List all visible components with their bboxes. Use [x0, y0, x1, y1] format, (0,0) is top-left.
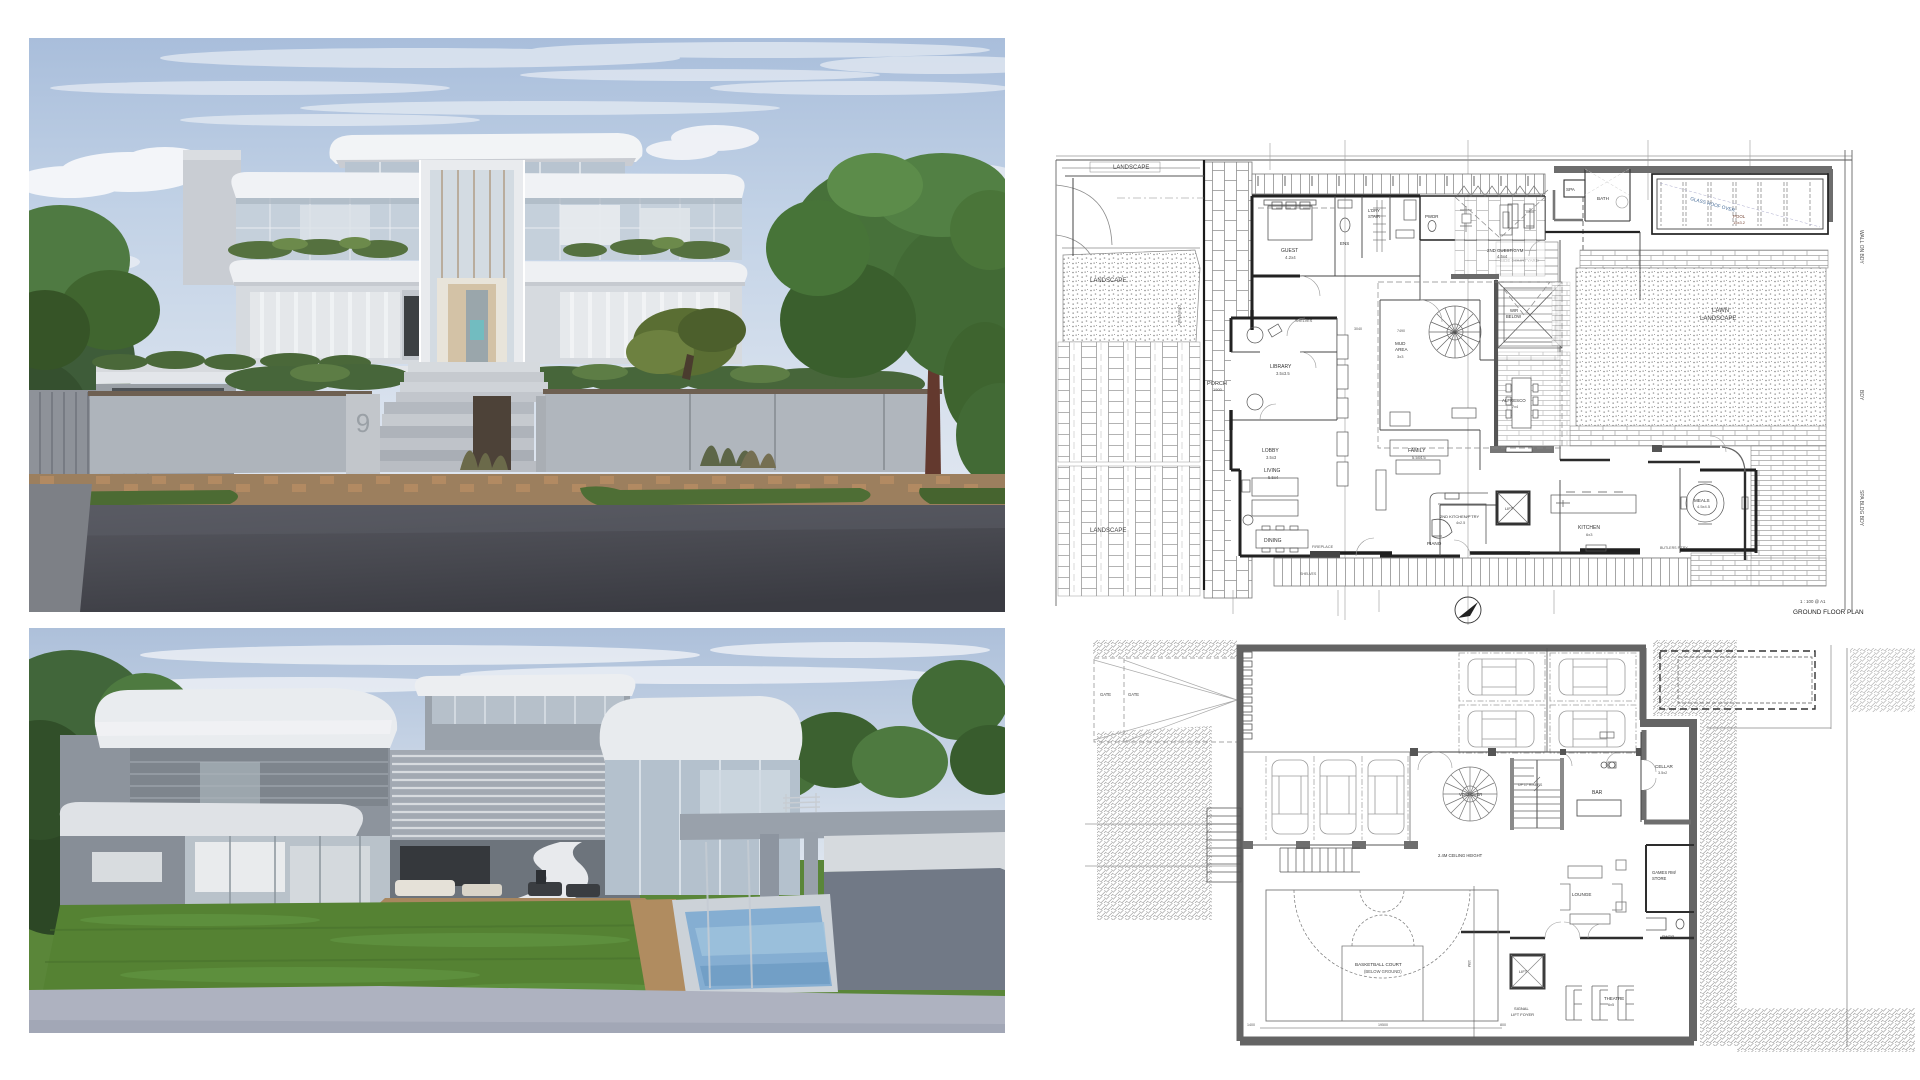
- svg-text:BATH: BATH: [1597, 196, 1609, 201]
- svg-text:L'DRY: L'DRY: [1368, 208, 1380, 213]
- svg-text:3x3: 3x3: [1397, 354, 1404, 359]
- svg-text:PWDR: PWDR: [1425, 214, 1438, 219]
- svg-text:2ND KITCHEN/P'TRY: 2ND KITCHEN/P'TRY: [1440, 514, 1479, 519]
- svg-text:800: 800: [1500, 1023, 1506, 1027]
- svg-text:BDY: BDY: [1858, 390, 1864, 401]
- svg-text:15x3.2: 15x3.2: [1733, 220, 1746, 225]
- svg-text:5.5x4.5: 5.5x4.5: [1412, 455, 1426, 460]
- svg-text:1 : 100 @ A1: 1 : 100 @ A1: [1800, 599, 1826, 604]
- svg-text:4.2x4: 4.2x4: [1285, 255, 1296, 260]
- svg-text:MEALS: MEALS: [1694, 498, 1710, 503]
- svg-text:DINING: DINING: [1264, 538, 1282, 544]
- svg-text:BUTLERS P'TRY: BUTLERS P'TRY: [1660, 546, 1688, 550]
- svg-text:DRIVEWAY: DRIVEWAY: [1177, 305, 1182, 326]
- svg-text:3040: 3040: [1354, 327, 1362, 331]
- svg-text:7490: 7490: [1397, 329, 1405, 333]
- svg-text:9: 9: [356, 408, 370, 438]
- svg-text:LIFT: LIFT: [1519, 969, 1528, 974]
- svg-text:BELOW: BELOW: [1506, 314, 1521, 319]
- svg-text:SPA BLDG BDY: SPA BLDG BDY: [1858, 490, 1864, 527]
- svg-text:GUEST: GUEST: [1281, 248, 1298, 254]
- svg-text:STAIR: STAIR: [1368, 214, 1380, 219]
- svg-text:3.5x3.5: 3.5x3.5: [1276, 371, 1290, 376]
- svg-text:(BELOW GROUND): (BELOW GROUND): [1364, 969, 1402, 974]
- svg-text:LIVING: LIVING: [1264, 468, 1281, 474]
- svg-text:UP 17 RISERS: UP 17 RISERS: [1518, 783, 1543, 787]
- svg-text:LANDSCAPE: LANDSCAPE: [1090, 528, 1126, 534]
- svg-text:LOUNGE: LOUNGE: [1572, 892, 1591, 897]
- svg-text:POOL: POOL: [1733, 214, 1746, 219]
- svg-text:1400: 1400: [1247, 1023, 1255, 1027]
- svg-text:6x5: 6x5: [1608, 1003, 1614, 1007]
- svg-text:4.5x4: 4.5x4: [1497, 254, 1508, 259]
- svg-text:GATE: GATE: [1100, 692, 1111, 697]
- svg-text:KITCHEN: KITCHEN: [1578, 525, 1600, 531]
- svg-text:SPA: SPA: [1566, 187, 1576, 192]
- svg-text:STORE: STORE: [1652, 876, 1667, 881]
- svg-text:LIFT FOYER: LIFT FOYER: [1511, 1012, 1534, 1017]
- svg-text:CELLAR: CELLAR: [1655, 764, 1674, 769]
- svg-text:LANDSCAPE: LANDSCAPE: [1700, 316, 1736, 322]
- svg-text:BAR: BAR: [1592, 790, 1603, 796]
- svg-text:LIFT: LIFT: [1505, 506, 1514, 511]
- svg-text:19500: 19500: [1378, 1023, 1388, 1027]
- svg-text:1900: 1900: [1213, 387, 1223, 392]
- svg-text:LAWN: LAWN: [1712, 308, 1729, 314]
- svg-text:FAMILY: FAMILY: [1408, 448, 1426, 454]
- svg-text:2ND GUEST/GYM: 2ND GUEST/GYM: [1487, 248, 1524, 253]
- svg-text:15M: 15M: [1467, 960, 1471, 967]
- svg-text:SIGNAL: SIGNAL: [1514, 1006, 1529, 1011]
- svg-text:LOBBY: LOBBY: [1262, 448, 1279, 454]
- svg-text:VOID OVER: VOID OVER: [1459, 792, 1482, 797]
- svg-text:SHELVES: SHELVES: [1300, 572, 1317, 576]
- svg-text:LANDSCAPE: LANDSCAPE: [1090, 278, 1126, 284]
- svg-text:2.4M CEILING HEIGHT: 2.4M CEILING HEIGHT: [1438, 853, 1483, 858]
- svg-text:4x2.5: 4x2.5: [1456, 521, 1465, 525]
- svg-text:GAMES RM/: GAMES RM/: [1652, 870, 1677, 875]
- svg-text:3.5x3: 3.5x3: [1266, 455, 1277, 460]
- svg-text:ALFRESCO: ALFRESCO: [1502, 398, 1526, 403]
- svg-text:LIBRARY: LIBRARY: [1270, 364, 1292, 370]
- svg-text:FIREPLACE: FIREPLACE: [1312, 545, 1334, 549]
- svg-text:3.5x2: 3.5x2: [1658, 771, 1667, 775]
- svg-text:THEATRE: THEATRE: [1604, 996, 1624, 1001]
- svg-text:7x4: 7x4: [1512, 405, 1518, 409]
- svg-text:5.5x4: 5.5x4: [1268, 475, 1279, 480]
- svg-text:6x3: 6x3: [1586, 532, 1593, 537]
- svg-text:WIR: WIR: [1510, 308, 1518, 313]
- svg-text:ENS: ENS: [1340, 241, 1349, 246]
- svg-text:GROUND FLOOR PLAN: GROUND FLOOR PLAN: [1793, 609, 1864, 616]
- svg-text:GATE: GATE: [1128, 692, 1139, 697]
- svg-text:PIANO: PIANO: [1427, 541, 1442, 546]
- svg-text:BASKETBALL COURT: BASKETBALL COURT: [1355, 962, 1402, 967]
- svg-text:AREA: AREA: [1395, 347, 1408, 352]
- svg-text:MUD: MUD: [1395, 341, 1406, 346]
- svg-text:WIL: WIL: [1450, 330, 1458, 335]
- svg-text:4.5x4.5: 4.5x4.5: [1697, 504, 1711, 509]
- svg-text:WALL ON BDY: WALL ON BDY: [1858, 230, 1864, 264]
